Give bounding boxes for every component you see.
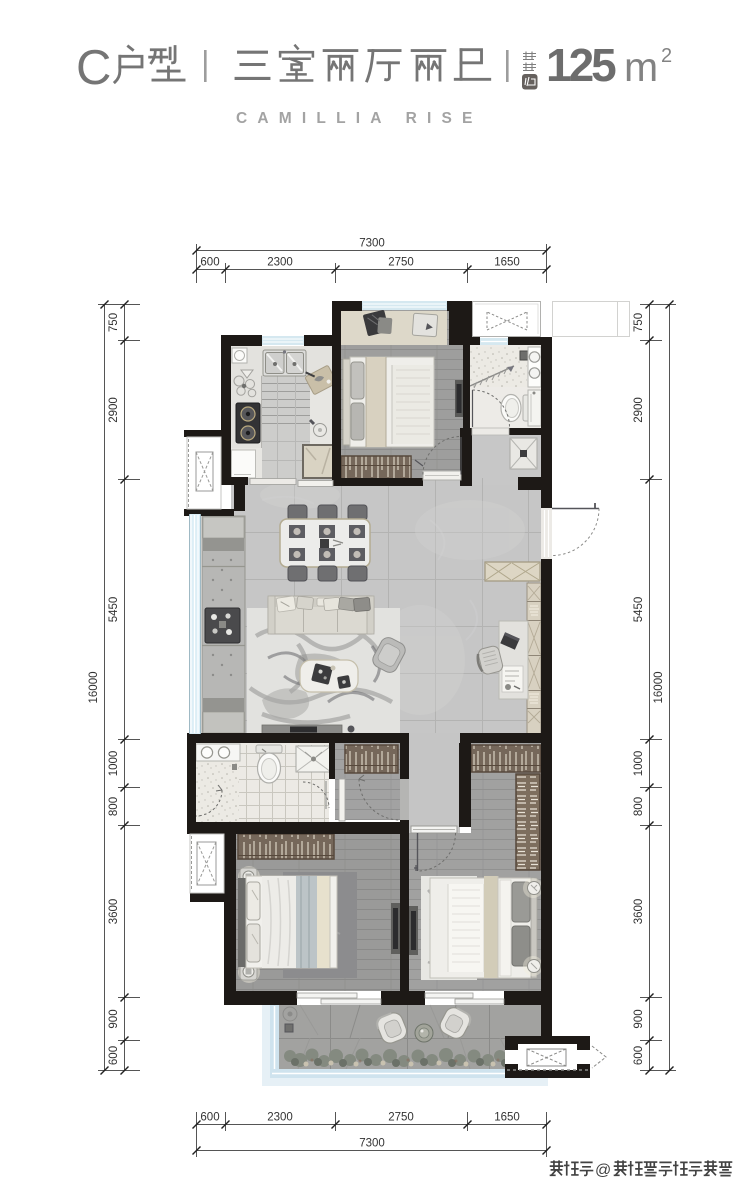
svg-text:125: 125 xyxy=(546,39,616,91)
svg-text:2900: 2900 xyxy=(633,397,645,423)
svg-text:16000: 16000 xyxy=(88,672,100,704)
svg-text:2300: 2300 xyxy=(267,1112,293,1124)
svg-text:2750: 2750 xyxy=(388,257,414,269)
svg-text:16000: 16000 xyxy=(653,672,665,704)
svg-text:7300: 7300 xyxy=(359,238,385,250)
svg-text:C: C xyxy=(76,41,112,95)
svg-text:2300: 2300 xyxy=(267,257,293,269)
svg-text:2750: 2750 xyxy=(388,1112,414,1124)
svg-text:750: 750 xyxy=(633,313,645,332)
svg-text:1000: 1000 xyxy=(633,751,645,777)
svg-text:1000: 1000 xyxy=(108,751,120,777)
svg-text:m: m xyxy=(624,44,658,90)
svg-text:900: 900 xyxy=(108,1009,120,1028)
svg-text:@: @ xyxy=(595,1162,611,1179)
svg-text:600: 600 xyxy=(200,1112,219,1124)
svg-text:5450: 5450 xyxy=(633,597,645,623)
svg-text:2: 2 xyxy=(661,45,672,67)
svg-text:900: 900 xyxy=(633,1009,645,1028)
svg-text:1650: 1650 xyxy=(494,257,520,269)
svg-text:800: 800 xyxy=(108,797,120,816)
svg-text:1650: 1650 xyxy=(494,1112,520,1124)
svg-text:5450: 5450 xyxy=(108,597,120,623)
svg-text:600: 600 xyxy=(108,1046,120,1065)
svg-text:600: 600 xyxy=(633,1046,645,1065)
svg-text:3600: 3600 xyxy=(633,899,645,925)
svg-text:3600: 3600 xyxy=(108,899,120,925)
svg-text:750: 750 xyxy=(108,313,120,332)
svg-text:600: 600 xyxy=(200,257,219,269)
svg-text:CAMILLIA RISE: CAMILLIA RISE xyxy=(236,110,483,127)
svg-text:7300: 7300 xyxy=(359,1138,385,1150)
svg-text:800: 800 xyxy=(633,797,645,816)
svg-text:2900: 2900 xyxy=(108,397,120,423)
